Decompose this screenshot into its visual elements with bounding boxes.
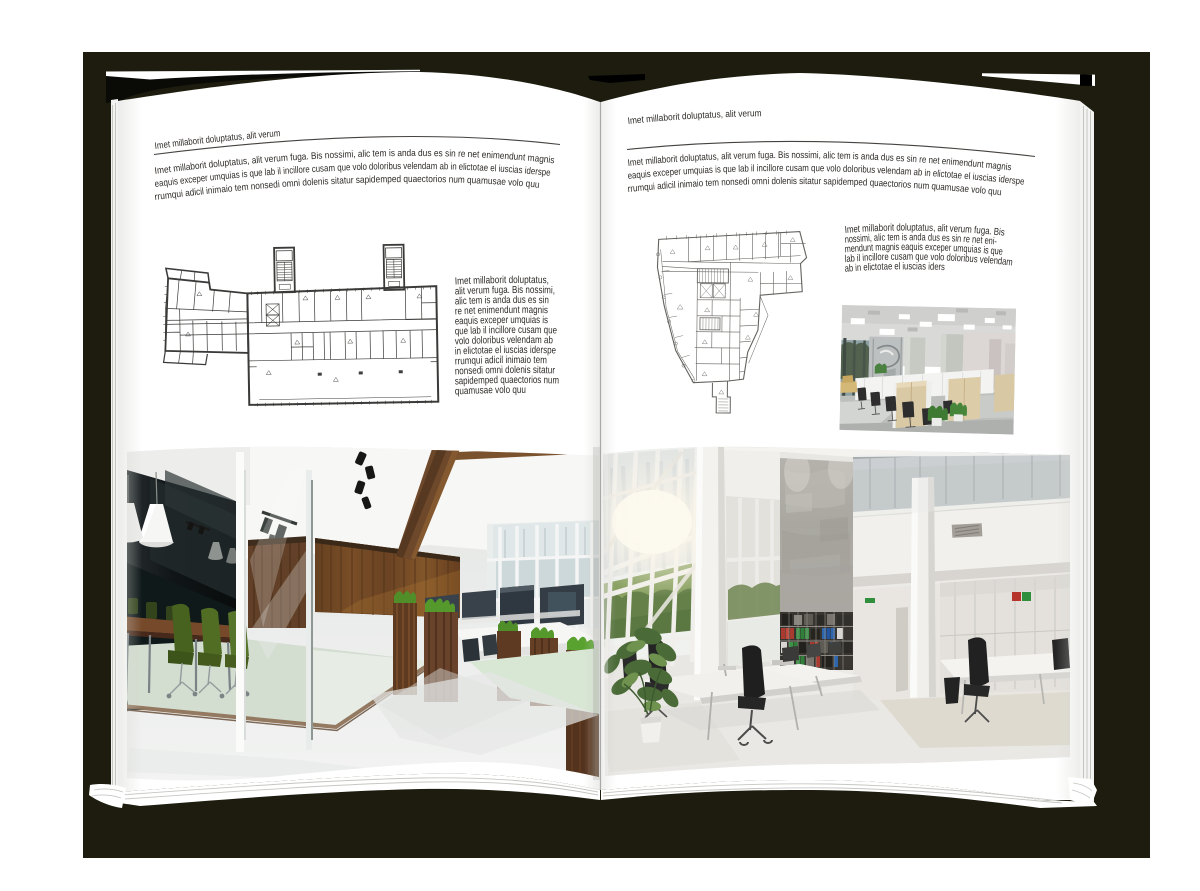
svg-text:quamusae volo quu: quamusae volo quu — [455, 385, 526, 398]
